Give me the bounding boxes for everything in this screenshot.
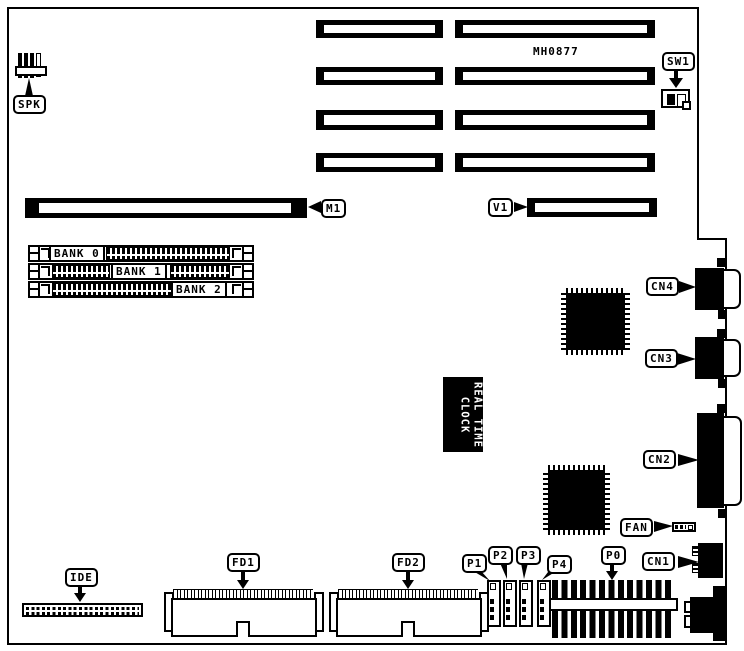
label-p3: P3: [516, 546, 541, 565]
pointer-cn3: [677, 353, 696, 365]
pointer-sw1: [669, 69, 683, 88]
label-p0: P0: [601, 546, 626, 565]
label-fan: FAN: [620, 518, 653, 537]
pointer-m1: [308, 201, 321, 213]
pointer-ide: [74, 585, 86, 602]
memory-slot-m1: [25, 198, 307, 218]
fd2-key-notch: [401, 621, 415, 637]
jumper-header-p2: [503, 580, 517, 627]
connector-cn3: [695, 337, 724, 379]
expansion-slot-row4-right: [455, 153, 655, 172]
cn4-mount-tab-bottom: [718, 310, 727, 319]
dip-switch-icon: [661, 89, 690, 108]
label-cn1: CN1: [642, 552, 675, 571]
label-p4: P4: [547, 555, 572, 574]
cn4-port-outline: [722, 269, 741, 309]
power-connector-p0-band: [549, 598, 678, 611]
pointer-p2: [500, 563, 507, 579]
pointer-cn2: [678, 454, 699, 466]
bank2-label: BANK 2: [171, 281, 227, 298]
cn2-port-outline: [722, 416, 742, 506]
label-spk: SPK: [13, 95, 46, 114]
pointer-fd2: [402, 570, 414, 589]
cn2-mount-tab-top: [717, 404, 726, 413]
fan-header-icon: [672, 522, 696, 532]
outline-and-pointers: [0, 0, 744, 651]
expansion-slot-row2-left: [316, 67, 443, 85]
bank0-label: BANK 0: [49, 245, 105, 262]
pointer-spk: [25, 78, 33, 96]
motherboard-diagram: MH0877 BANK 0 BANK 1 BANK 2 REAL TIME CL…: [0, 0, 744, 651]
speaker-header-icon: [17, 53, 45, 79]
label-cn4: CN4: [646, 277, 679, 296]
expansion-slot-row2-right: [455, 67, 655, 85]
aux-connector-outer: [713, 586, 726, 641]
cn4-mount-tab-top: [717, 258, 726, 267]
label-fd2: FD2: [392, 553, 425, 572]
pointer-cn4: [679, 281, 696, 293]
pointer-v1: [514, 202, 528, 212]
rtc-label-line2: CLOCK: [458, 396, 470, 433]
slot-v1: [527, 198, 657, 217]
expansion-slot-row3-left: [316, 110, 443, 130]
real-time-clock-chip: REAL TIME CLOCK: [443, 377, 483, 452]
expansion-slot-row3-right: [455, 110, 655, 130]
pointer-fan: [654, 521, 673, 532]
board-code-text: MH0877: [533, 45, 579, 58]
expansion-slot-row1-right: [455, 20, 655, 38]
label-fd1: FD1: [227, 553, 260, 572]
label-v1: V1: [488, 198, 513, 217]
bank1-label: BANK 1: [111, 263, 167, 280]
cn3-port-outline: [722, 339, 741, 377]
fd1-key-notch: [236, 621, 250, 637]
connector-cn2: [697, 413, 724, 508]
cn3-mount-tab-bottom: [718, 379, 727, 388]
label-cn3: CN3: [645, 349, 678, 368]
ide-connector: [22, 603, 143, 617]
connector-cn1: [698, 543, 723, 578]
connector-cn4: [695, 268, 724, 310]
expansion-slot-row1-left: [316, 20, 443, 38]
label-p1: P1: [462, 554, 487, 573]
qfp-chip-upper: [561, 288, 630, 355]
pointer-p0: [606, 563, 618, 580]
cn2-mount-tab-bottom: [718, 509, 727, 518]
aux-connector-inner: [690, 597, 714, 633]
pointer-fd1: [237, 570, 249, 589]
label-sw1: SW1: [662, 52, 695, 71]
jumper-header-p3: [519, 580, 533, 627]
label-m1: M1: [321, 199, 346, 218]
jumper-header-p1: [487, 580, 501, 627]
label-cn2: CN2: [643, 450, 676, 469]
rtc-label-line1: REAL TIME: [471, 382, 483, 448]
label-ide: IDE: [65, 568, 98, 587]
qfp-chip-lower: [543, 465, 610, 535]
pointer-p3: [521, 563, 528, 579]
label-p2: P2: [488, 546, 513, 565]
expansion-slot-row4-left: [316, 153, 443, 172]
